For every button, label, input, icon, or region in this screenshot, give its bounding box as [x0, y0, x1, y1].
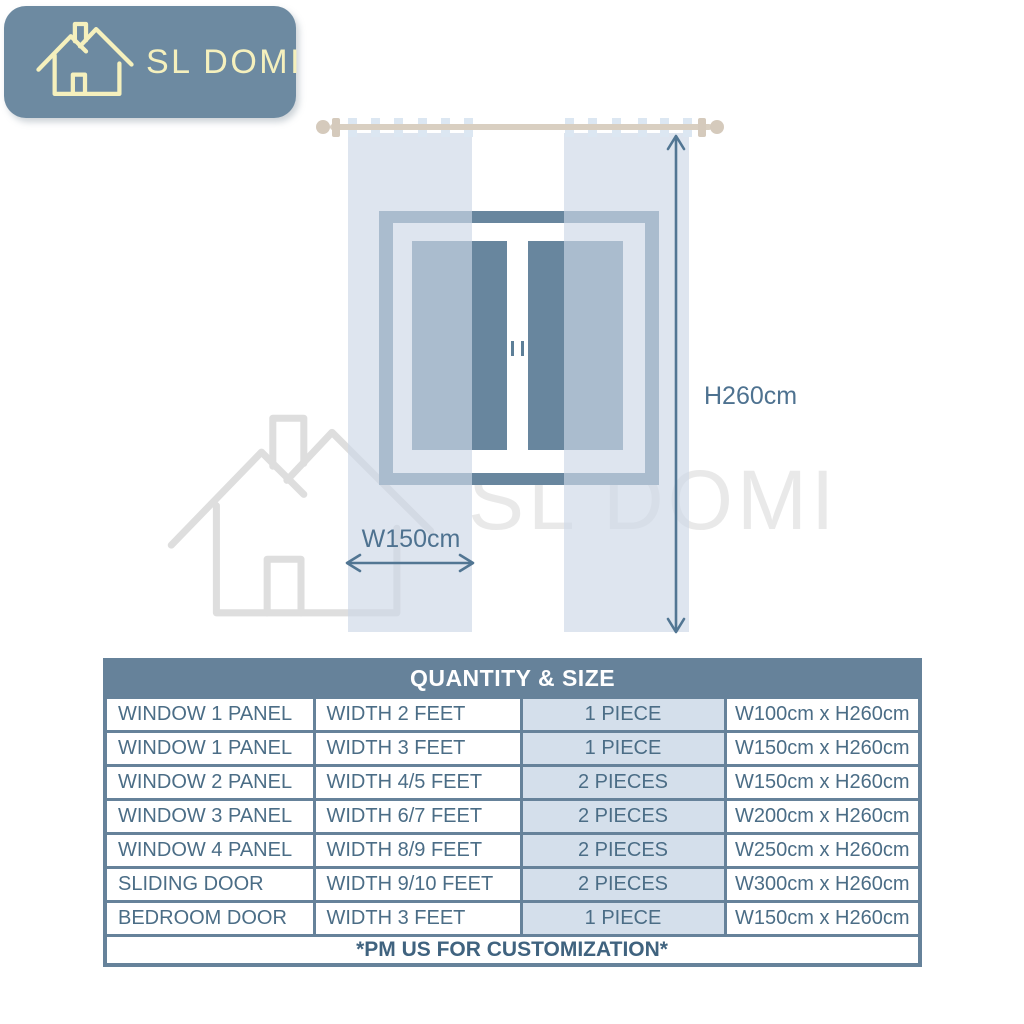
table-cell: W150cm x H260cm — [725, 765, 920, 799]
rod-bracket-right — [698, 118, 706, 137]
table-cell: 2 PIECES — [521, 799, 725, 833]
rod-finial-right — [710, 120, 724, 134]
table-cell: W200cm x H260cm — [725, 799, 920, 833]
table-row: WINDOW 3 PANELWIDTH 6/7 FEET2 PIECESW200… — [105, 799, 920, 833]
table-cell: WIDTH 4/5 FEET — [314, 765, 521, 799]
table-cell: 2 PIECES — [521, 765, 725, 799]
table-footer-row: *PM US FOR CUSTOMIZATION* — [105, 935, 920, 965]
table-footer-note: *PM US FOR CUSTOMIZATION* — [105, 935, 920, 965]
table-cell: 1 PIECE — [521, 901, 725, 935]
table-cell: WIDTH 3 FEET — [314, 901, 521, 935]
table-cell: WIDTH 8/9 FEET — [314, 833, 521, 867]
table-row: WINDOW 2 PANELWIDTH 4/5 FEET2 PIECESW150… — [105, 765, 920, 799]
logo-text: SL DOMI — [146, 43, 302, 82]
width-label: W150cm — [348, 525, 474, 554]
table-row: WINDOW 1 PANELWIDTH 2 FEET1 PIECEW100cm … — [105, 697, 920, 731]
table-cell: W100cm x H260cm — [725, 697, 920, 731]
table-cell: 2 PIECES — [521, 867, 725, 901]
table-cell: WIDTH 9/10 FEET — [314, 867, 521, 901]
table-cell: W150cm x H260cm — [725, 731, 920, 765]
size-table-body: WINDOW 1 PANELWIDTH 2 FEET1 PIECEW100cm … — [105, 697, 920, 935]
table-row: BEDROOM DOORWIDTH 3 FEET1 PIECEW150cm x … — [105, 901, 920, 935]
rod-bracket-left — [332, 118, 340, 137]
table-cell: 2 PIECES — [521, 833, 725, 867]
table-cell: BEDROOM DOOR — [105, 901, 314, 935]
table-row: SLIDING DOORWIDTH 9/10 FEET2 PIECESW300c… — [105, 867, 920, 901]
curtain-rod — [330, 124, 712, 130]
table-row: WINDOW 4 PANELWIDTH 8/9 FEET2 PIECESW250… — [105, 833, 920, 867]
infographic-canvas: SL DOMI H260cm W150cm SL DOMI — [0, 0, 1024, 1024]
table-cell: 1 PIECE — [521, 731, 725, 765]
table-cell: WIDTH 6/7 FEET — [314, 799, 521, 833]
table-cell: W250cm x H260cm — [725, 833, 920, 867]
table-cell: WIDTH 3 FEET — [314, 731, 521, 765]
table-cell: WINDOW 3 PANEL — [105, 799, 314, 833]
height-label: H260cm — [704, 382, 797, 411]
table-cell: W300cm x H260cm — [725, 867, 920, 901]
table-cell: W150cm x H260cm — [725, 901, 920, 935]
rod-finial-left — [316, 120, 330, 134]
table-cell: WINDOW 2 PANEL — [105, 765, 314, 799]
table-cell: 1 PIECE — [521, 697, 725, 731]
table-title: QUANTITY & SIZE — [105, 660, 920, 697]
table-cell: SLIDING DOOR — [105, 867, 314, 901]
table-cell: WIDTH 2 FEET — [314, 697, 521, 731]
table-cell: WINDOW 1 PANEL — [105, 731, 314, 765]
window-handle-left — [511, 341, 514, 356]
height-arrow — [664, 130, 688, 638]
table-cell: WINDOW 1 PANEL — [105, 697, 314, 731]
table-header-row: QUANTITY & SIZE — [105, 660, 920, 697]
table-row: WINDOW 1 PANELWIDTH 3 FEET1 PIECEW150cm … — [105, 731, 920, 765]
window-handle-right — [521, 341, 524, 356]
width-arrow — [342, 551, 478, 575]
size-table: QUANTITY & SIZE WINDOW 1 PANELWIDTH 2 FE… — [103, 658, 922, 967]
logo-house-icon — [34, 19, 136, 105]
logo-badge: SL DOMI — [4, 6, 296, 118]
table-cell: WINDOW 4 PANEL — [105, 833, 314, 867]
